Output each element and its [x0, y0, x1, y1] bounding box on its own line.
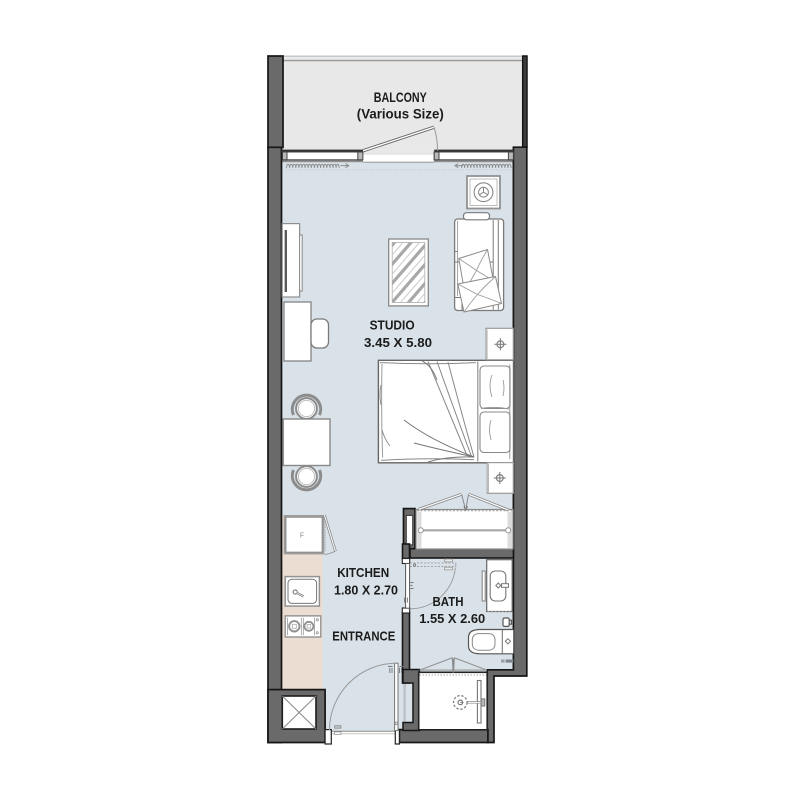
- svg-text:KITCHEN: KITCHEN: [337, 565, 389, 580]
- svg-text:BATH: BATH: [433, 594, 464, 609]
- svg-text:BALCONY: BALCONY: [374, 90, 427, 106]
- svg-text:1.80 X 2.70: 1.80 X 2.70: [334, 583, 398, 598]
- svg-text:ENTRANCE: ENTRANCE: [332, 629, 395, 644]
- svg-text:3.45 X 5.80: 3.45 X 5.80: [364, 335, 432, 350]
- svg-text:(Various Size): (Various Size): [357, 107, 444, 122]
- svg-text:1.55 X 2.60: 1.55 X 2.60: [419, 611, 485, 626]
- svg-text:STUDIO: STUDIO: [370, 317, 415, 332]
- svg-text:F: F: [300, 533, 305, 541]
